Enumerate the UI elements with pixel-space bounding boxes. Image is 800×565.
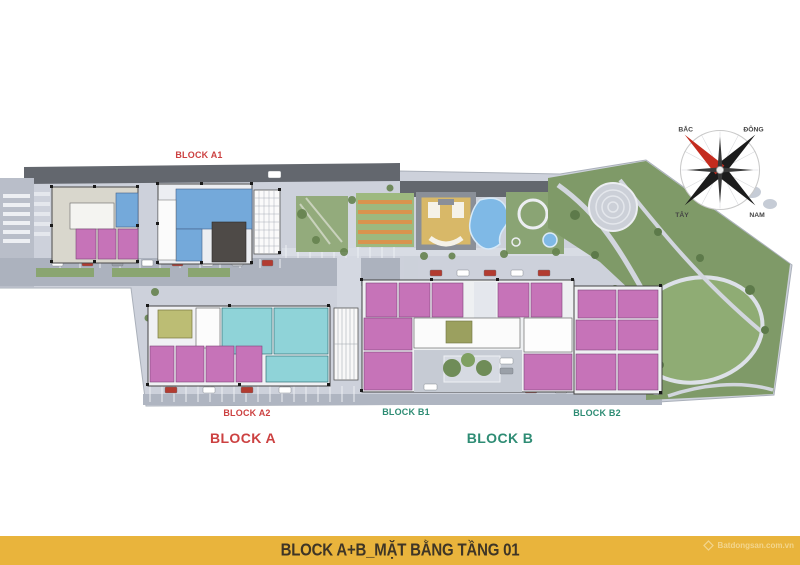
building-block-b1 [360,278,574,392]
compass-label-west: TÂY [675,210,689,219]
label-block-b: BLOCK B [435,430,565,446]
amphitheater-court [416,192,476,250]
site-plan [0,0,800,565]
label-block-a: BLOCK A [178,430,308,446]
compass-label-east: ĐÔNG [743,125,763,134]
compass-hub [716,166,723,173]
watermark: Batdongsan.com.vn [703,540,794,551]
ramp-grid-a2 [334,308,358,380]
footer-bar: BLOCK A+B_MẶT BẰNG TẦNG 01 [0,536,800,565]
label-block-a2: BLOCK A2 [197,408,297,418]
amenity-area [296,192,564,254]
watermark-logo-icon [703,540,714,551]
dome-canopy [589,183,637,231]
building-block-a1-left [50,185,139,263]
label-block-b1: BLOCK B1 [356,407,456,417]
compass-label-north: BẮC [678,125,693,134]
garden [296,196,348,252]
playground [356,193,414,247]
building-block-a2 [146,304,358,386]
label-block-a1: BLOCK A1 [149,150,249,160]
compass-label-south: NAM [749,212,765,219]
compass-rose: BẮC ĐÔNG TÂY NAM [668,118,772,222]
watermark-text: Batdongsan.com.vn [718,541,794,550]
car-on-road [268,171,281,178]
page: BẮC ĐÔNG TÂY NAM BLOCK A1 BLOCK A2 BLOCK… [0,0,800,565]
dropoff-courtyard [414,350,522,392]
label-block-b2: BLOCK B2 [547,408,647,418]
building-block-b2 [574,284,662,394]
ramp-grid [254,190,280,254]
page-title: BLOCK A+B_MẶT BẰNG TẦNG 01 [281,541,520,561]
building-block-a1-right [156,182,281,264]
